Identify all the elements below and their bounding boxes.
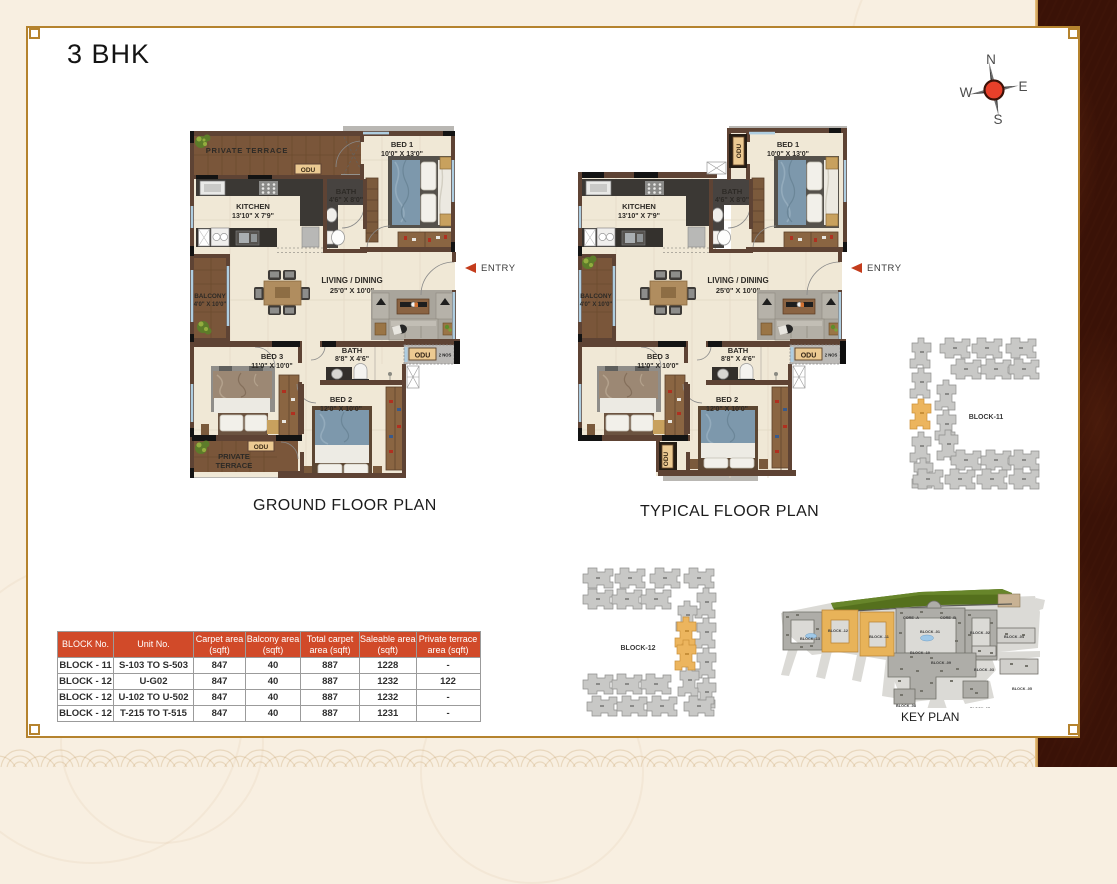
svg-text:BATH: BATH: [342, 346, 363, 355]
svg-text:LIVING / DINING: LIVING / DINING: [321, 276, 382, 285]
svg-text:KITCHEN: KITCHEN: [622, 202, 656, 211]
svg-text:W: W: [960, 85, 973, 100]
svg-text:11'0" X 10'0": 11'0" X 10'0": [637, 363, 679, 370]
svg-text:E: E: [1018, 79, 1027, 94]
svg-text:BLOCK -02: BLOCK -02: [970, 631, 990, 635]
svg-text:25'0" X 10'0": 25'0" X 10'0": [330, 286, 375, 295]
svg-text:10'0" X 13'0": 10'0" X 13'0": [381, 151, 423, 158]
svg-text:13'10" X 7'9": 13'10" X 7'9": [618, 213, 660, 220]
svg-text:13'10" X 7'9": 13'10" X 7'9": [232, 213, 274, 220]
svg-text:11'0" X 10'0": 11'0" X 10'0": [251, 363, 293, 370]
svg-text:ODU: ODU: [301, 167, 316, 174]
svg-text:4'6" X 8'0": 4'6" X 8'0": [329, 197, 363, 204]
svg-text:BED 3: BED 3: [261, 352, 283, 361]
svg-text:BED 3: BED 3: [647, 352, 669, 361]
svg-text:PRIVATE: PRIVATE: [218, 452, 250, 461]
svg-text:8'8" X 4'6": 8'8" X 4'6": [335, 356, 369, 363]
svg-text:TERRACE: TERRACE: [216, 461, 253, 470]
svg-text:12'0" X 10'0": 12'0" X 10'0": [320, 406, 362, 413]
svg-text:12'0" X 10'0": 12'0" X 10'0": [706, 406, 748, 413]
svg-text:25'0" X 10'0": 25'0" X 10'0": [716, 286, 761, 295]
svg-text:ODU: ODU: [801, 353, 817, 360]
svg-text:BATH: BATH: [336, 187, 357, 196]
svg-text:BED 1: BED 1: [777, 140, 800, 149]
svg-text:LIVING / DINING: LIVING / DINING: [707, 276, 768, 285]
svg-text:BLOCK -13: BLOCK -13: [800, 637, 820, 641]
svg-text:BLOCK -08: BLOCK -08: [896, 704, 916, 708]
svg-text:BLOCK -03: BLOCK -03: [974, 668, 994, 672]
svg-text:BALCONY: BALCONY: [194, 293, 226, 300]
svg-text:BLOCK -10: BLOCK -10: [910, 651, 930, 655]
svg-text:10'0" X 13'0": 10'0" X 13'0": [767, 151, 809, 158]
svg-text:4'0" X 10'0": 4'0" X 10'0": [580, 302, 613, 308]
svg-text:BLOCK -09: BLOCK -09: [931, 661, 951, 665]
svg-text:2 NOS: 2 NOS: [439, 353, 452, 358]
svg-text:ODU: ODU: [736, 143, 743, 158]
svg-text:ODU: ODU: [415, 353, 431, 360]
svg-text:BED 1: BED 1: [391, 140, 414, 149]
svg-text:KITCHEN: KITCHEN: [236, 202, 270, 211]
svg-text:4'0" X 10'0": 4'0" X 10'0": [194, 302, 227, 308]
svg-text:ODU: ODU: [663, 451, 670, 466]
svg-text:PRIVATE TERRACE: PRIVATE TERRACE: [206, 146, 289, 155]
svg-text:ODU: ODU: [254, 444, 269, 451]
svg-text:2 NOS: 2 NOS: [825, 353, 838, 358]
svg-text:4'6" X 8'0": 4'6" X 8'0": [715, 197, 749, 204]
svg-text:BLOCK -05: BLOCK -05: [1012, 687, 1032, 691]
svg-text:BLOCK -07: BLOCK -07: [970, 707, 990, 708]
svg-text:BLOCK -04: BLOCK -04: [1004, 635, 1025, 639]
svg-text:BLOCK -11: BLOCK -11: [869, 635, 889, 639]
svg-text:BED 2: BED 2: [330, 395, 352, 404]
svg-text:S: S: [993, 112, 1002, 127]
svg-text:BALCONY: BALCONY: [580, 293, 612, 300]
svg-text:BATH: BATH: [722, 187, 743, 196]
svg-text:BATH: BATH: [728, 346, 749, 355]
svg-text:CORE -A: CORE -A: [903, 616, 919, 620]
svg-text:BLOCK-12: BLOCK-12: [620, 645, 655, 652]
svg-text:CORE -B: CORE -B: [940, 616, 956, 620]
svg-text:BLOCK-11: BLOCK-11: [969, 414, 1004, 421]
svg-text:BLOCK -12: BLOCK -12: [828, 629, 848, 633]
svg-text:N: N: [986, 52, 996, 67]
svg-text:8'8" X 4'6": 8'8" X 4'6": [721, 356, 755, 363]
svg-text:BED 2: BED 2: [716, 395, 738, 404]
svg-text:BLOCK -01: BLOCK -01: [920, 630, 940, 634]
